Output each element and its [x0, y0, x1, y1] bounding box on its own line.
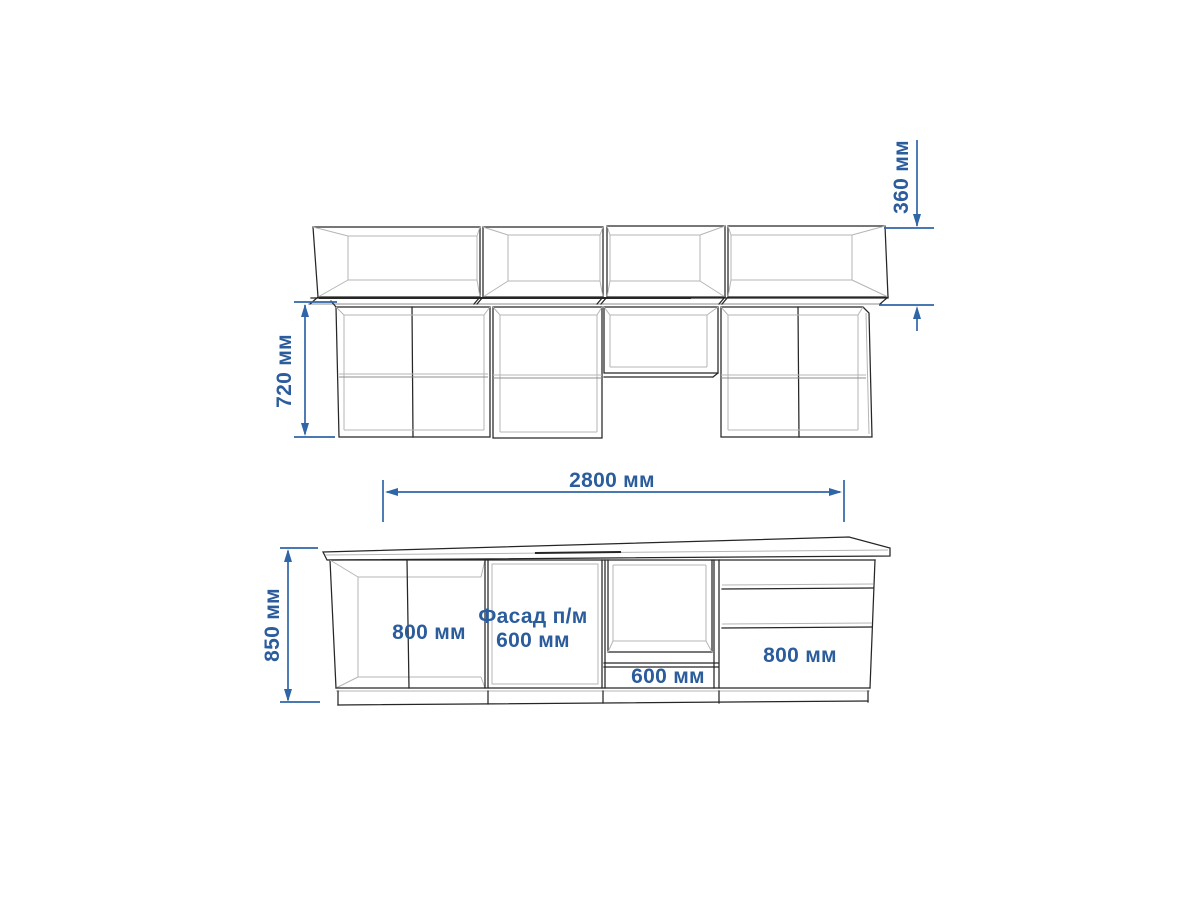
base-facade-label: Фасад п/м 600 мм	[477, 605, 589, 653]
base-drawer-cabinet-label: 800 мм	[763, 644, 837, 668]
dimension-850	[280, 548, 320, 702]
kitchen-dimension-diagram: 360 мм 720 мм 2800 мм 850 мм 800 мм Фаса…	[0, 0, 1201, 900]
cabinet-line-drawing	[0, 0, 1201, 900]
dimension-720	[294, 302, 337, 437]
base-left-cabinet-label: 800 мм	[392, 621, 466, 645]
dimension-label-720mm: 720 мм	[273, 334, 297, 408]
wall-cabinet-top-row	[308, 226, 888, 304]
dimension-label-850mm: 850 мм	[261, 588, 285, 662]
base-oven-niche-label: 600 мм	[631, 665, 705, 689]
wall-cabinet-bottom-row	[331, 301, 872, 438]
dimension-label-2800mm: 2800 мм	[569, 469, 655, 493]
dimension-label-360mm: 360 мм	[890, 140, 914, 214]
